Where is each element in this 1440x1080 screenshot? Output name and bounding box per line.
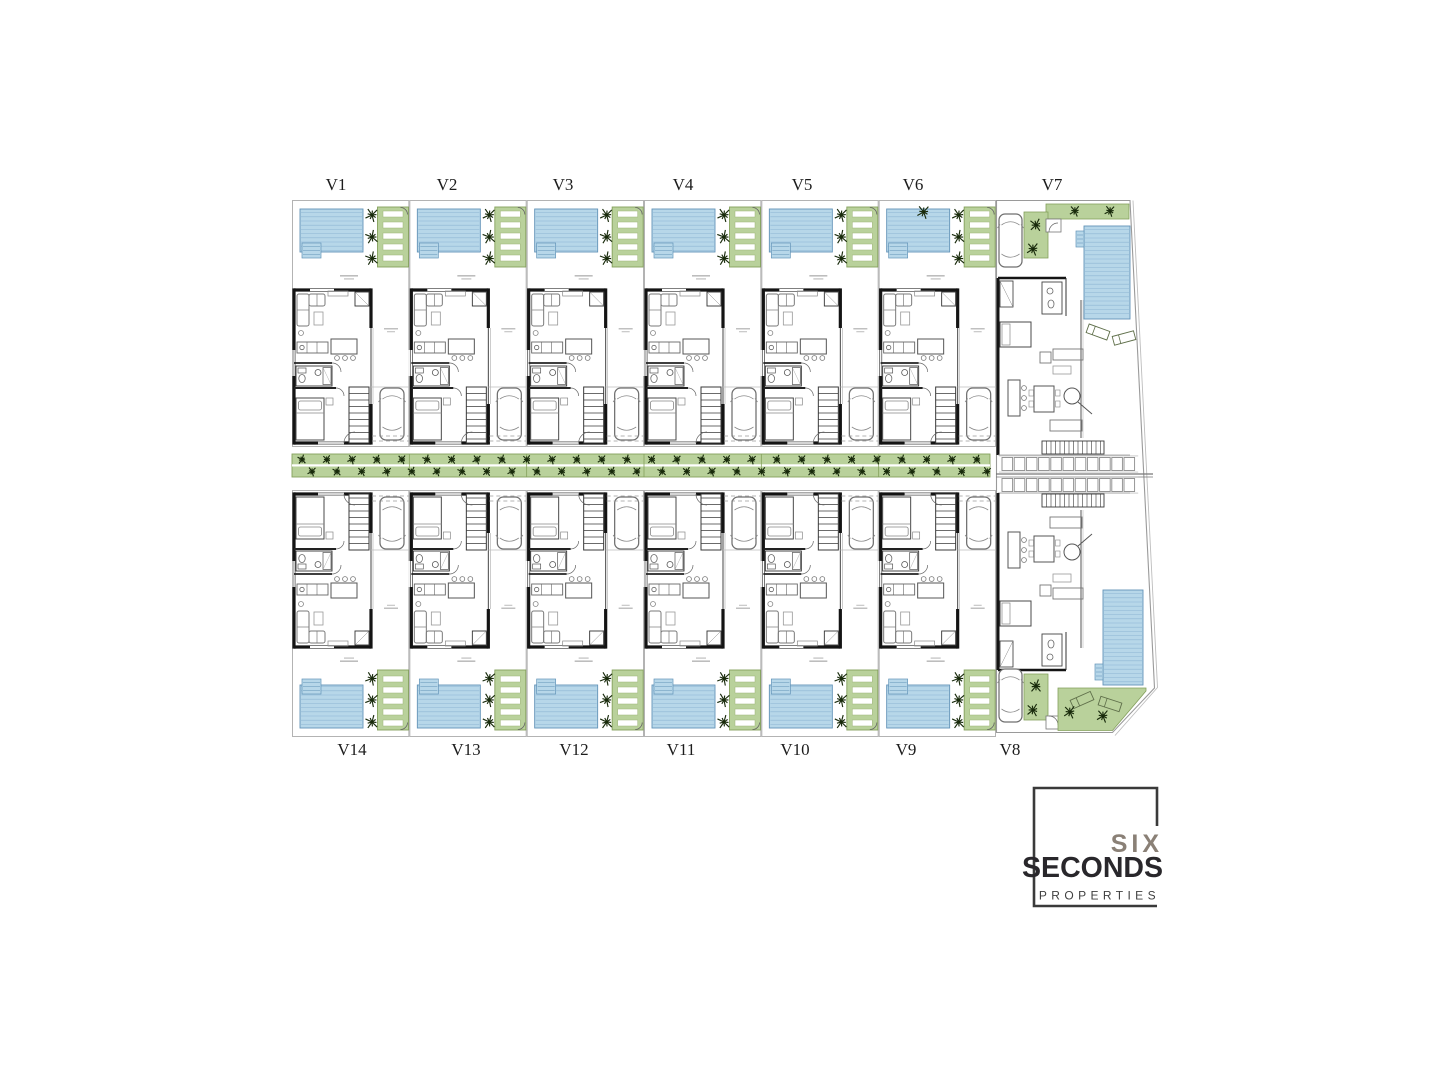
bed <box>413 497 441 539</box>
patio-area-label <box>853 608 867 610</box>
garden-area-label <box>340 275 358 277</box>
garden-deck <box>729 670 760 730</box>
kitchen-island <box>566 339 592 354</box>
kitchen-island <box>918 583 944 598</box>
patio-area-label <box>384 608 398 610</box>
garden-deck <box>612 207 643 267</box>
patio-area-label <box>736 608 750 610</box>
pool-steps <box>419 679 438 694</box>
garden-deck <box>729 207 760 267</box>
stairs <box>701 494 721 550</box>
stairs <box>936 494 956 550</box>
swimming-pool <box>1103 590 1143 685</box>
stairs <box>818 387 838 443</box>
unit-V13-plan <box>760 491 878 737</box>
unit-label-V14: V14 <box>337 740 367 759</box>
bed <box>765 497 793 539</box>
kitchen-counter <box>884 584 915 595</box>
garden-deck <box>378 670 409 730</box>
pool-steps <box>302 243 321 258</box>
unit-V10-plan <box>408 491 526 737</box>
unit-V6-plan <box>878 201 996 447</box>
pool-steps <box>1076 231 1084 247</box>
patio-area-label <box>971 608 985 610</box>
page: V1V2V3V4V5V6V7V14V13V12V11V10V9V8SIXSECO… <box>0 0 1440 1080</box>
bed <box>531 497 559 539</box>
patio-area-label <box>619 608 633 610</box>
garden-deck <box>964 670 995 730</box>
car <box>998 214 1024 267</box>
car <box>730 388 757 440</box>
kitchen-island <box>918 339 944 354</box>
car <box>848 388 875 440</box>
kitchen-island <box>683 583 709 598</box>
garden-area-label <box>927 660 945 662</box>
logo-seconds: SECONDS <box>1022 852 1163 884</box>
paver-terrace <box>999 456 1138 472</box>
garden-area-label <box>457 275 475 277</box>
kitchen-island <box>566 583 592 598</box>
patio-area-label <box>501 608 515 610</box>
stairs <box>349 387 369 443</box>
garden-area-label <box>340 660 358 662</box>
stairs <box>1042 494 1104 507</box>
unit-label-V6: V6 <box>903 175 924 194</box>
car <box>496 388 523 440</box>
bed <box>648 398 676 440</box>
unit-label-V7: V7 <box>1042 175 1063 194</box>
unit-label-V12: V12 <box>559 740 588 759</box>
pool-steps <box>419 243 438 258</box>
garden-deck <box>847 670 878 730</box>
pool-steps <box>889 679 908 694</box>
unit-label-V5: V5 <box>792 175 813 194</box>
kitchen-island <box>448 339 474 354</box>
kitchen-counter <box>532 342 563 353</box>
kitchen-counter <box>649 584 680 595</box>
paver-terrace <box>999 477 1138 493</box>
kitchen-island <box>331 583 357 598</box>
car <box>379 497 406 549</box>
garden-deck <box>612 670 643 730</box>
car <box>998 669 1024 722</box>
pool-steps <box>537 243 556 258</box>
kitchen-island <box>683 339 709 354</box>
stairs <box>584 494 604 550</box>
kitchen-island <box>448 583 474 598</box>
patio-area-label <box>501 328 515 330</box>
car <box>613 388 640 440</box>
patio-area-label <box>736 328 750 330</box>
patio-area-label <box>853 328 867 330</box>
stairs <box>936 387 956 443</box>
garden-area-label <box>692 660 710 662</box>
site-plan: V1V2V3V4V5V6V7V14V13V12V11V10V9V8SIXSECO… <box>0 0 1440 1080</box>
kitchen-counter <box>766 584 797 595</box>
logo-properties: PROPERTIES <box>1039 889 1160 903</box>
garden-deck <box>964 207 995 267</box>
patio-area-label <box>971 328 985 330</box>
unit-label-V11: V11 <box>667 740 696 759</box>
pool-steps <box>889 243 908 258</box>
unit-V14-plan <box>878 491 996 737</box>
garden-deck <box>378 207 409 267</box>
car <box>965 388 992 440</box>
unit-V3-plan <box>526 201 644 447</box>
car <box>730 497 757 549</box>
unit-V9-plan <box>291 491 409 737</box>
pool-steps <box>537 679 556 694</box>
unit-V5-plan <box>760 201 878 447</box>
pool-steps <box>654 679 673 694</box>
stairs <box>349 494 369 550</box>
green-median <box>292 454 991 477</box>
kitchen-counter <box>649 342 680 353</box>
car <box>496 497 523 549</box>
bed <box>531 398 559 440</box>
swimming-pool <box>1084 226 1130 319</box>
unit-label-V2: V2 <box>437 175 458 194</box>
bed <box>296 497 324 539</box>
pool-steps <box>654 243 673 258</box>
pool-steps <box>1095 664 1103 680</box>
bed <box>883 497 911 539</box>
unit-label-V3: V3 <box>553 175 574 194</box>
garden-deck <box>495 670 526 730</box>
patio-area-label <box>619 328 633 330</box>
kitchen-counter <box>532 584 563 595</box>
stairs <box>1042 441 1104 454</box>
garden-strip <box>1024 674 1048 720</box>
stairs <box>584 387 604 443</box>
garden-area-label <box>575 660 593 662</box>
bed <box>765 398 793 440</box>
bed <box>883 398 911 440</box>
car <box>379 388 406 440</box>
garden-area-label <box>457 660 475 662</box>
bed <box>648 497 676 539</box>
kitchen-island <box>800 339 826 354</box>
six-seconds-properties-logo: SIXSECONDSPROPERTIES <box>1022 788 1163 906</box>
garden-area-label <box>809 275 827 277</box>
car <box>848 497 875 549</box>
car <box>613 497 640 549</box>
unit-label-V1: V1 <box>326 175 347 194</box>
unit-V4-plan <box>643 201 761 447</box>
unit-V12-plan <box>643 491 761 737</box>
kitchen-counter <box>414 342 445 353</box>
unit-V1-plan <box>291 201 409 447</box>
unit-V2-plan <box>408 201 526 447</box>
garden-deck <box>495 207 526 267</box>
kitchen-island <box>800 583 826 598</box>
bed <box>296 398 324 440</box>
kitchen-counter <box>297 342 328 353</box>
garden-area-label <box>927 275 945 277</box>
garden-area-label <box>809 660 827 662</box>
pool-steps <box>771 679 790 694</box>
stairs <box>701 387 721 443</box>
car <box>965 497 992 549</box>
entry <box>1046 219 1061 232</box>
kitchen-counter <box>297 584 328 595</box>
pool-steps <box>771 243 790 258</box>
unit-label-V8: V8 <box>1000 740 1021 759</box>
unit-label-V4: V4 <box>673 175 694 194</box>
garden-area-label <box>692 275 710 277</box>
garden-strip <box>1046 204 1129 219</box>
kitchen-counter <box>766 342 797 353</box>
pool-steps <box>302 679 321 694</box>
stairs <box>818 494 838 550</box>
kitchen-island <box>331 339 357 354</box>
unit-label-V13: V13 <box>451 740 480 759</box>
garden-area-label <box>575 275 593 277</box>
bed <box>413 398 441 440</box>
unit-label-V9: V9 <box>896 740 917 759</box>
kitchen-counter <box>884 342 915 353</box>
stairs <box>466 387 486 443</box>
unit-label-V10: V10 <box>780 740 809 759</box>
garden-deck <box>847 207 878 267</box>
kitchen-counter <box>414 584 445 595</box>
patio-area-label <box>384 328 398 330</box>
stairs <box>466 494 486 550</box>
unit-V11-plan <box>526 491 644 737</box>
